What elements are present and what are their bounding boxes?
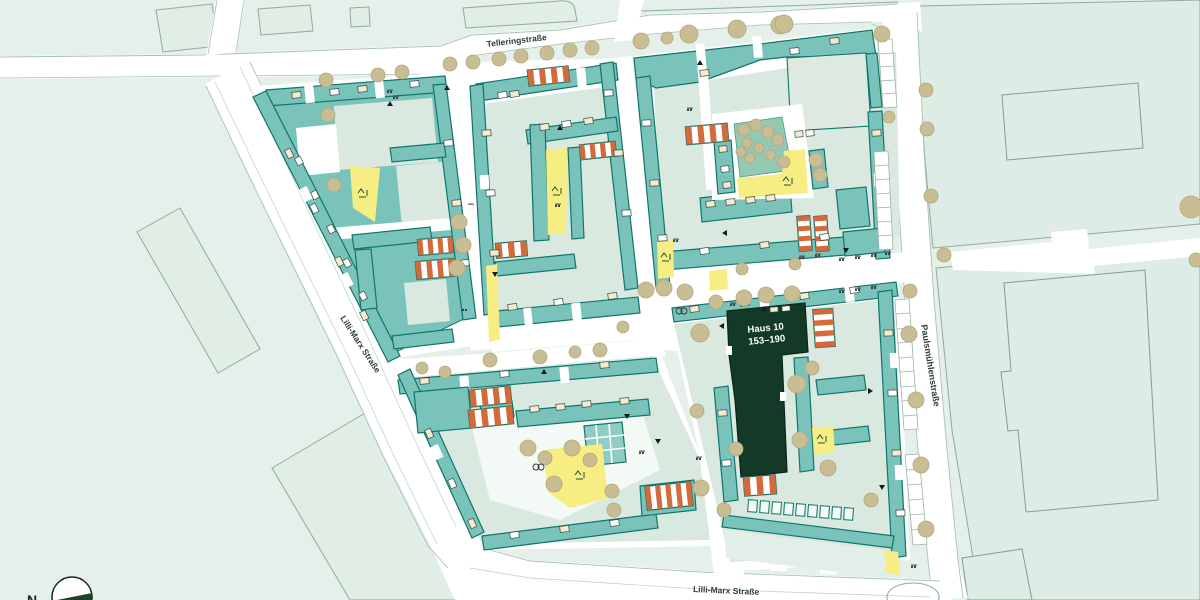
svg-text:N: N [27,592,37,600]
